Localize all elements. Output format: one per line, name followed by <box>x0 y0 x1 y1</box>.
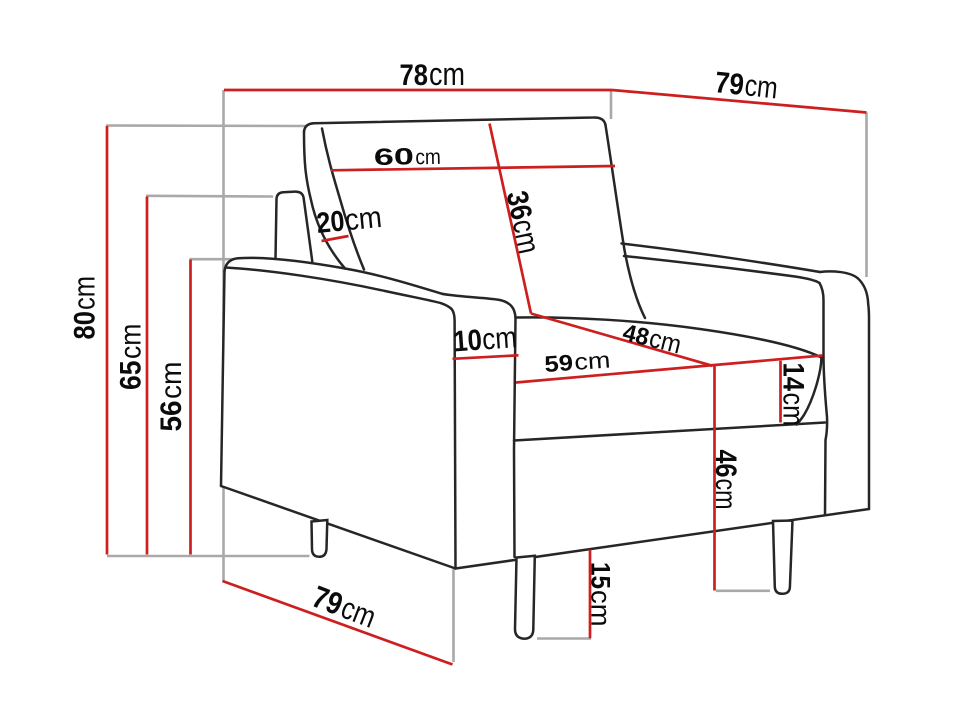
svg-text:cm: cm <box>67 276 102 310</box>
svg-text:46: 46 <box>709 450 742 478</box>
svg-text:78: 78 <box>400 59 428 92</box>
svg-text:60: 60 <box>374 143 414 170</box>
svg-text:59: 59 <box>544 350 574 377</box>
svg-text:cm: cm <box>415 145 441 169</box>
svg-text:20: 20 <box>315 205 346 240</box>
svg-text:14: 14 <box>777 363 810 392</box>
svg-text:80: 80 <box>69 311 102 339</box>
svg-text:cm: cm <box>155 362 188 400</box>
svg-text:cm: cm <box>343 201 383 237</box>
svg-text:15: 15 <box>586 562 616 589</box>
svg-text:65: 65 <box>115 361 148 391</box>
svg-text:cm: cm <box>481 321 518 356</box>
svg-text:cm: cm <box>586 590 617 627</box>
svg-text:cm: cm <box>573 346 611 374</box>
svg-text:cm: cm <box>743 68 779 105</box>
svg-text:cm: cm <box>429 56 465 92</box>
svg-text:cm: cm <box>777 393 810 427</box>
svg-text:79: 79 <box>713 66 745 102</box>
svg-text:10: 10 <box>452 324 483 359</box>
svg-text:cm: cm <box>115 324 148 360</box>
svg-text:cm: cm <box>709 479 742 510</box>
svg-text:56: 56 <box>155 401 188 432</box>
svg-text:cm: cm <box>506 216 547 257</box>
